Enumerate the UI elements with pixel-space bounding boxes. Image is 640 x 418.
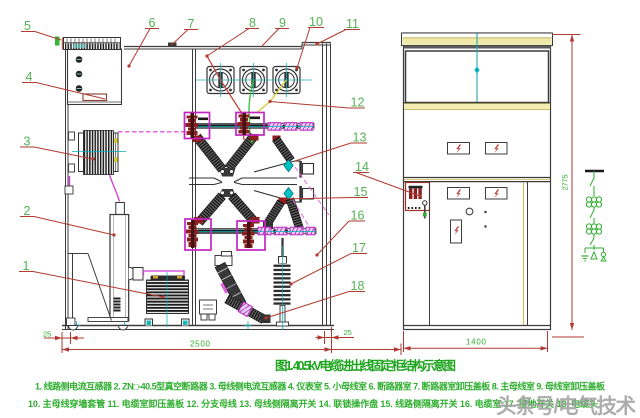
- svg-text:头条号/电气技术: 头条号/电气技术: [496, 394, 637, 418]
- svg-text:8: 8: [249, 16, 256, 30]
- svg-text:14: 14: [355, 160, 369, 174]
- svg-text:10: 10: [309, 15, 323, 29]
- svg-text:2500: 2500: [190, 340, 211, 349]
- svg-text:2775: 2775: [561, 175, 570, 191]
- svg-text:图1. 40.5kV电缆进出线固定柜结构示意图: 图1. 40.5kV电缆进出线固定柜结构示意图: [275, 358, 456, 373]
- svg-text:7: 7: [188, 17, 195, 31]
- svg-text:25: 25: [43, 330, 51, 339]
- svg-text:1. 线路侧电流互感器 2. ZN□-40.5型真空断路器: 1. 线路侧电流互感器 2. ZN□-40.5型真空断路器 3. 母线侧电流互感…: [35, 381, 606, 392]
- svg-text:17: 17: [352, 241, 366, 255]
- svg-text:4: 4: [26, 70, 33, 84]
- svg-text:25: 25: [344, 328, 352, 337]
- svg-text:16: 16: [351, 209, 365, 223]
- svg-text:5: 5: [24, 19, 31, 33]
- svg-text:15: 15: [354, 185, 368, 199]
- svg-text:13: 13: [353, 131, 367, 145]
- svg-text:1400: 1400: [466, 338, 487, 347]
- svg-text:12: 12: [351, 96, 365, 110]
- svg-text:1: 1: [23, 259, 30, 273]
- svg-text:6: 6: [149, 16, 156, 30]
- svg-text:2: 2: [24, 204, 31, 218]
- svg-text:18: 18: [351, 279, 365, 293]
- svg-text:11: 11: [346, 17, 359, 31]
- svg-text:9: 9: [279, 16, 286, 30]
- svg-text:3: 3: [24, 135, 31, 149]
